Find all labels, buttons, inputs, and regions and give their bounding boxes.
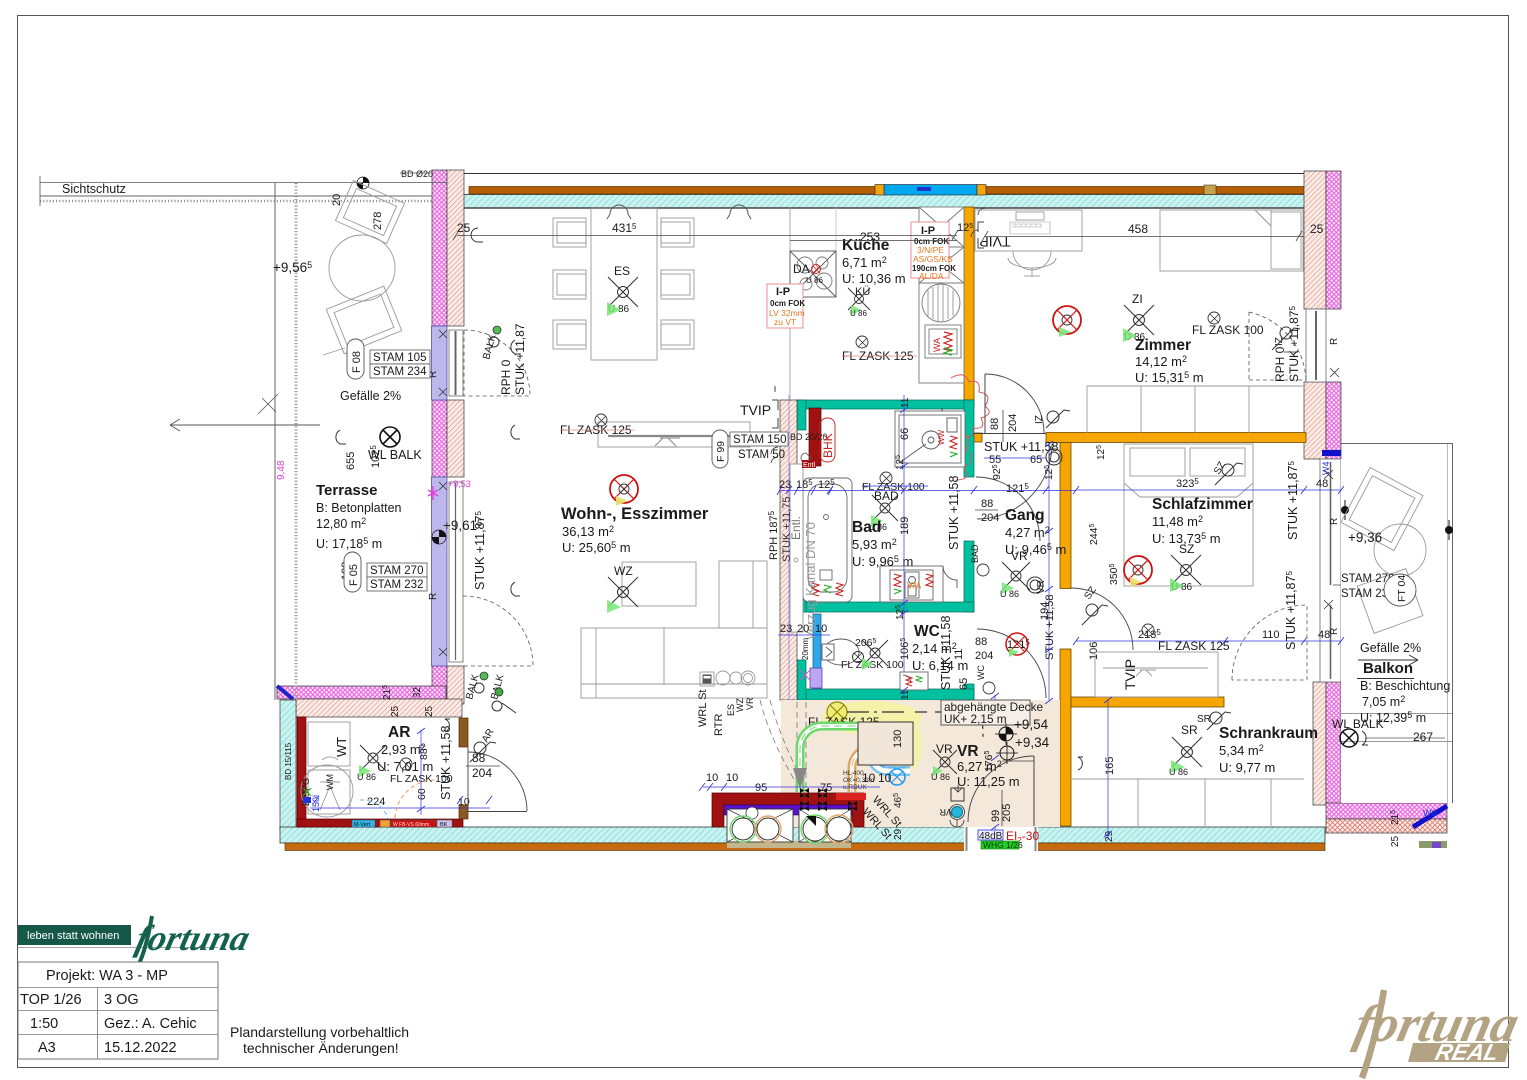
svg-text:TOP 1/26: TOP 1/26 [20, 992, 82, 1008]
svg-text:F 05: F 05 [348, 564, 360, 586]
svg-text:U: 25,605 m: U: 25,605 m [562, 540, 631, 555]
svg-text:9,48: 9,48 [276, 460, 287, 480]
svg-text:36,13 m2: 36,13 m2 [562, 524, 614, 539]
svg-text:20mm: 20mm [801, 637, 810, 660]
svg-text:15.12.2022: 15.12.2022 [104, 1040, 177, 1056]
svg-text:48: 48 [1316, 478, 1328, 490]
svg-text:VR: VR [936, 742, 953, 756]
svg-text:110: 110 [1262, 629, 1280, 641]
svg-text:+9,54: +9,54 [1014, 717, 1049, 732]
svg-text:Gefälle 2%: Gefälle 2% [340, 389, 401, 403]
svg-text:224: 224 [367, 796, 385, 808]
svg-text:204: 204 [1007, 414, 1019, 432]
svg-text:60: 60 [416, 788, 428, 800]
svg-text:7,05 m2: 7,05 m2 [1362, 694, 1405, 709]
svg-text:U: 10,36 m: U: 10,36 m [842, 271, 906, 286]
svg-text:STUK +11,875: STUK +11,875 [1284, 571, 1298, 650]
svg-text:+9,565: +9,565 [273, 260, 312, 275]
svg-text:48: 48 [1318, 629, 1330, 641]
svg-text:SR: SR [1197, 714, 1211, 725]
svg-text:Sichtschutz: Sichtschutz [62, 182, 126, 196]
svg-text:BAD: BAD [970, 544, 980, 563]
svg-text:1:50: 1:50 [30, 1016, 58, 1032]
svg-text:AS/GS/KS: AS/GS/KS [913, 254, 953, 264]
svg-text:W0: W0 [1423, 808, 1437, 818]
svg-text:Bad: Bad [852, 519, 881, 536]
svg-text:11: 11 [953, 649, 965, 660]
svg-text:FL ZASK 125: FL ZASK 125 [1158, 639, 1230, 653]
svg-text:U 86: U 86 [1000, 589, 1019, 599]
svg-text:U 86: U 86 [357, 772, 376, 782]
svg-text:R: R [1329, 628, 1340, 635]
svg-text:65: 65 [958, 678, 970, 690]
svg-text:VR: VR [957, 743, 979, 760]
svg-text:STUK +11,75: STUK +11,75 [781, 496, 793, 562]
svg-text:zu VT: zu VT [774, 317, 796, 327]
svg-text:25: 25 [457, 221, 471, 235]
svg-text:10: 10 [815, 623, 827, 635]
svg-text:88: 88 [975, 636, 987, 648]
svg-text:STUK +11,58: STUK +11,58 [1044, 594, 1056, 660]
svg-text:VR: VR [939, 807, 952, 817]
svg-text:Schlafzimmer: Schlafzimmer [1152, 496, 1253, 513]
svg-text:5,34 m2: 5,34 m2 [1219, 743, 1264, 758]
svg-text:66: 66 [899, 428, 911, 440]
svg-text:RTR: RTR [713, 714, 725, 736]
svg-text:B: Beschichtung: B: Beschichtung [1360, 679, 1450, 693]
svg-text:leben statt wohnen: leben statt wohnen [27, 930, 119, 942]
svg-text:Projekt: WA 3 - MP: Projekt: WA 3 - MP [46, 968, 168, 984]
svg-text:11: 11 [900, 689, 911, 700]
svg-text:10: 10 [878, 771, 892, 785]
svg-text:DA: DA [793, 262, 810, 276]
svg-text:U 86: U 86 [850, 309, 867, 318]
svg-text:TVIP: TVIP [1122, 659, 1138, 690]
svg-text:R: R [428, 593, 439, 600]
svg-text:204: 204 [981, 512, 999, 524]
svg-text:VR: VR [1011, 549, 1028, 563]
svg-text:technischer Änderungen!: technischer Änderungen! [243, 1040, 399, 1056]
svg-text:204: 204 [975, 650, 993, 662]
svg-text:U 86: U 86 [1169, 767, 1188, 777]
svg-text:STAM 270: STAM 270 [370, 565, 423, 577]
svg-text:WHG 1/26: WHG 1/26 [983, 840, 1023, 850]
svg-text:AR: AR [388, 724, 410, 741]
svg-text:95: 95 [755, 782, 767, 794]
svg-text:IZ: IZ [1034, 415, 1045, 424]
svg-text:WZ: WZ [614, 564, 633, 578]
svg-text:267: 267 [1413, 730, 1433, 744]
svg-text:TVIP: TVIP [740, 402, 771, 418]
svg-text:WL BALK: WL BALK [1332, 717, 1384, 731]
svg-text:I-P: I-P [776, 286, 790, 298]
svg-text:STUK +11,87: STUK +11,87 [513, 323, 527, 395]
svg-text:STUK +11,875: STUK +11,875 [1286, 461, 1300, 540]
svg-text:STAM 232: STAM 232 [370, 579, 423, 591]
svg-text:ES: ES [614, 264, 630, 278]
svg-text:REAL: REAL [1433, 1039, 1502, 1065]
svg-text:U: 7,01 m: U: 7,01 m [377, 759, 433, 774]
svg-text:Gez.: A. Cehic: Gez.: A. Cehic [104, 1016, 197, 1032]
svg-text:WM: WM [325, 774, 335, 790]
svg-text:STAM 105: STAM 105 [373, 352, 426, 364]
svg-text:SZ: SZ [1179, 542, 1194, 556]
svg-text:R: R [1329, 518, 1340, 525]
svg-text:ZI: ZI [1132, 292, 1143, 306]
svg-text:130: 130 [892, 730, 904, 748]
svg-text:12,80 m2: 12,80 m2 [316, 516, 366, 531]
svg-text:106: 106 [1088, 642, 1100, 660]
svg-text:189: 189 [899, 517, 911, 535]
svg-text:458: 458 [1128, 222, 1148, 236]
svg-text:U: 11,25 m: U: 11,25 m [957, 774, 1020, 789]
svg-text:25: 25 [1310, 222, 1324, 236]
svg-text:WT: WT [334, 737, 349, 757]
svg-text:RPH 1875: RPH 1875 [767, 510, 780, 560]
svg-text:STAM 150: STAM 150 [733, 434, 786, 446]
svg-text:55: 55 [989, 454, 1001, 466]
svg-text:WC: WC [914, 623, 940, 640]
svg-text:U: 15,315 m: U: 15,315 m [1135, 370, 1204, 385]
svg-text:10: 10 [706, 772, 718, 784]
svg-text:FL ZASK 100: FL ZASK 100 [1192, 323, 1264, 337]
svg-text:WA: WA [907, 580, 921, 590]
svg-text:U: 17,185 m: U: 17,185 m [316, 536, 382, 551]
svg-text:Entl: Entl [803, 462, 816, 469]
svg-text:205: 205 [1001, 804, 1013, 822]
svg-text:M-Vert: M-Vert [354, 822, 371, 828]
svg-text:14,12 m2: 14,12 m2 [1135, 354, 1187, 369]
svg-text:F 08: F 08 [351, 351, 363, 373]
svg-text:0cm FOK: 0cm FOK [770, 299, 805, 308]
svg-text:BK: BK [440, 822, 448, 828]
svg-text:655: 655 [345, 452, 357, 470]
svg-text:Gefälle 2%: Gefälle 2% [1360, 641, 1421, 655]
svg-text:11: 11 [900, 397, 911, 408]
svg-text:25: 25 [1390, 835, 1401, 847]
svg-text:204: 204 [472, 766, 492, 780]
svg-text:20: 20 [331, 194, 343, 206]
svg-text:+9,53: +9,53 [448, 479, 471, 489]
svg-text:SR: SR [1181, 723, 1198, 737]
svg-text:25: 25 [424, 705, 435, 717]
svg-text:RPH 0: RPH 0 [499, 359, 513, 395]
svg-text:88: 88 [989, 418, 1001, 430]
svg-text:FT 04: FT 04 [1396, 575, 1408, 602]
svg-text:A3: A3 [38, 1040, 56, 1056]
svg-text:25: 25 [390, 705, 401, 717]
svg-text:BD Ø20: BD Ø20 [401, 169, 433, 179]
svg-text:10: 10 [726, 772, 738, 784]
svg-text:U 86: U 86 [806, 276, 823, 285]
svg-text:88: 88 [981, 498, 993, 510]
svg-text:29: 29 [893, 828, 904, 840]
svg-text:STAM 234: STAM 234 [373, 366, 427, 378]
svg-text:165: 165 [1104, 757, 1116, 775]
svg-text:STUK +11,58: STUK +11,58 [939, 615, 953, 690]
svg-text:3 OG: 3 OG [104, 992, 139, 1008]
svg-text:6,27 m2: 6,27 m2 [957, 759, 1002, 774]
svg-text:32: 32 [412, 686, 423, 698]
svg-text:Schrankraum: Schrankraum [1219, 725, 1318, 742]
svg-text:STAM 50: STAM 50 [738, 449, 785, 461]
svg-text:STUK +11,58: STUK +11,58 [947, 475, 961, 550]
svg-text:WC: WC [976, 665, 986, 680]
svg-text:VR: VR [745, 697, 755, 710]
svg-text:+9,34: +9,34 [1015, 735, 1050, 750]
svg-text:R: R [1329, 338, 1340, 345]
svg-text:WA: WA [932, 338, 942, 352]
svg-text:Gang: Gang [1005, 507, 1045, 524]
svg-text:U 86: U 86 [931, 772, 950, 782]
svg-text:B: Betonplatten: B: Betonplatten [316, 501, 402, 515]
svg-text:5,93 m2: 5,93 m2 [852, 537, 897, 552]
svg-text:11,48 m2: 11,48 m2 [1152, 514, 1203, 529]
svg-text:STUK +11,875: STUK +11,875 [1287, 306, 1301, 382]
svg-text:BD 15/115: BD 15/115 [284, 742, 293, 780]
svg-text:150l: 150l [311, 795, 321, 812]
svg-text:F 99: F 99 [715, 441, 727, 462]
svg-text:UK+ 2,15 m: UK+ 2,15 m [944, 712, 1007, 726]
svg-text:278: 278 [372, 212, 384, 230]
svg-text:AL/DA: AL/DA [919, 271, 944, 281]
svg-text:Wohn-, Esszimmer: Wohn-, Esszimmer [561, 505, 709, 523]
svg-text:253: 253 [860, 230, 880, 244]
svg-text:75: 75 [820, 782, 832, 794]
svg-text:6,71 m2: 6,71 m2 [842, 255, 887, 270]
svg-text:65: 65 [1030, 454, 1042, 466]
svg-text:23: 23 [780, 623, 792, 635]
svg-text:Zimmer: Zimmer [1135, 337, 1191, 354]
svg-text:HL 400: HL 400 [843, 770, 864, 777]
svg-text:Terrasse: Terrasse [316, 482, 377, 499]
svg-text:20: 20 [797, 623, 809, 635]
svg-text:U: 9,77 m: U: 9,77 m [1219, 760, 1275, 775]
svg-text:WZ: WZ [735, 698, 745, 712]
svg-text:u.RDUK: u.RDUK [843, 784, 868, 791]
svg-text:FL ZASK 100: FL ZASK 100 [841, 659, 904, 671]
svg-text:BHK: BHK [821, 433, 835, 458]
svg-text:STUK +11,875: STUK +11,875 [473, 511, 487, 590]
svg-text:+9,36: +9,36 [1348, 530, 1382, 545]
svg-text:WL BALK: WL BALK [368, 448, 422, 462]
svg-text:W FB-VS 60mm: W FB-VS 60mm [393, 822, 429, 828]
svg-text:10: 10 [862, 771, 876, 785]
svg-text:Balkon: Balkon [1363, 660, 1413, 677]
svg-text:STUK +11,58: STUK +11,58 [439, 725, 453, 800]
svg-text:Plandarstellung vorbehaltlich: Plandarstellung vorbehaltlich [230, 1024, 409, 1040]
svg-text:4,27 m2: 4,27 m2 [1005, 525, 1050, 540]
svg-text:WW: WW [937, 429, 946, 445]
svg-text:WRL St: WRL St [697, 690, 709, 728]
